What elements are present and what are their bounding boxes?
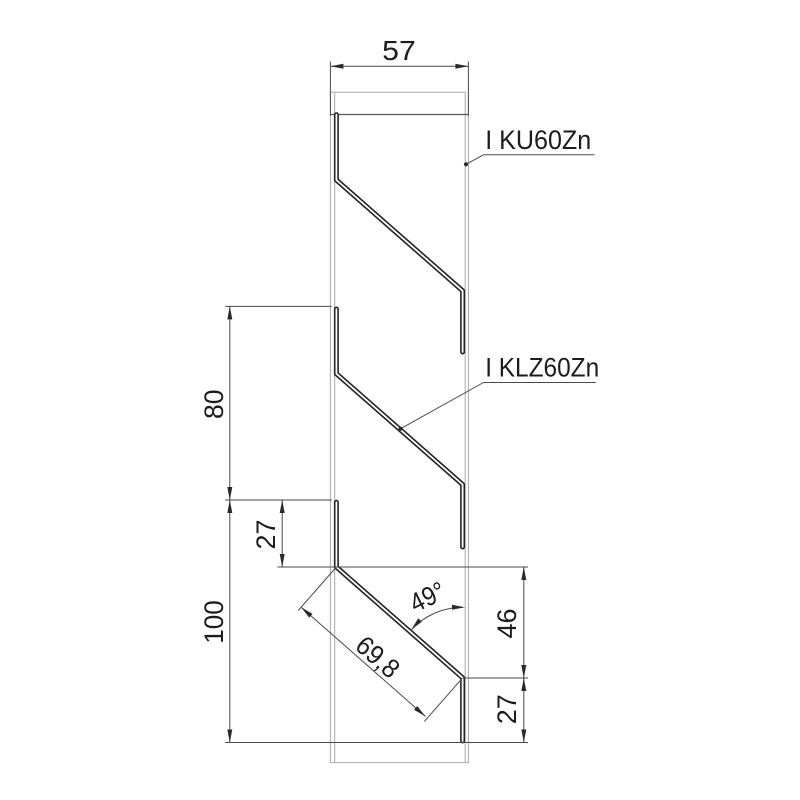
svg-text:100: 100 [199,600,229,644]
svg-text:27: 27 [251,520,281,550]
svg-text:27: 27 [492,694,522,724]
svg-text:46: 46 [492,609,522,639]
svg-text:80: 80 [199,390,229,420]
svg-text:I KLZ60Zn: I KLZ60Zn [485,353,599,383]
svg-text:57: 57 [382,35,416,66]
svg-text:I KU60Zn: I KU60Zn [485,125,591,155]
